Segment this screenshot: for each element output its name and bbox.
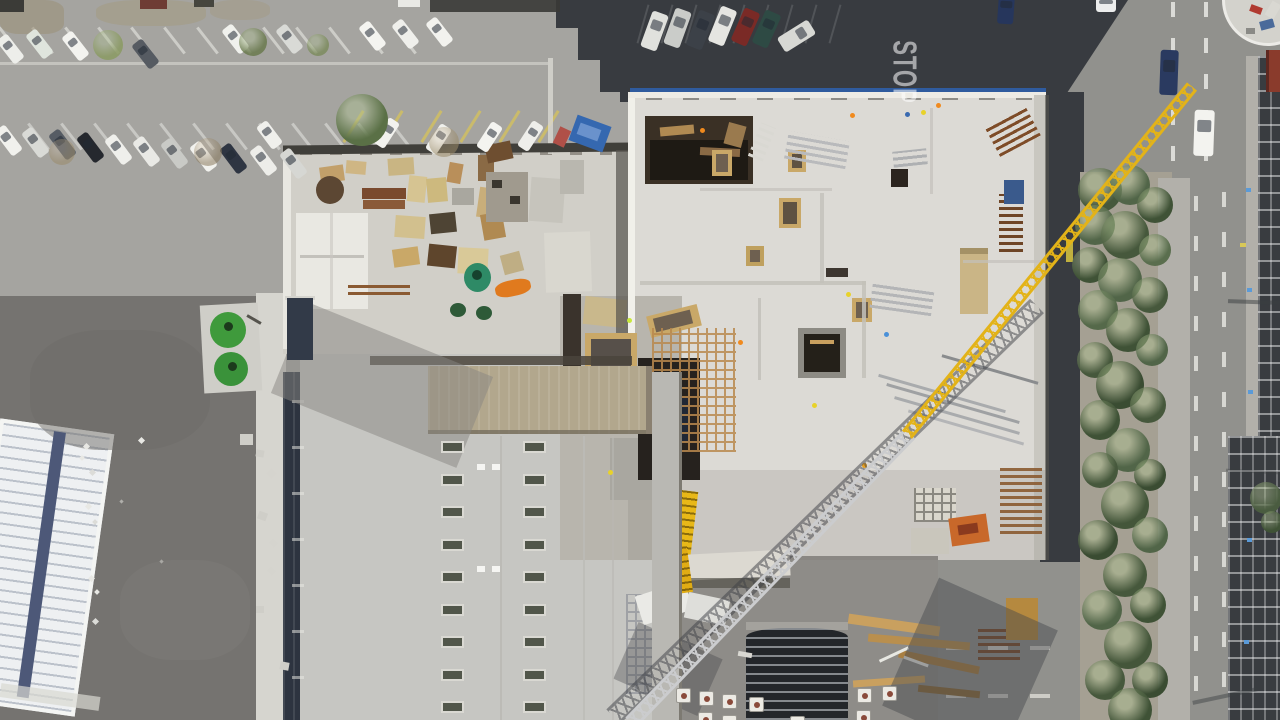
car-windshield bbox=[166, 144, 178, 156]
parked-car bbox=[1193, 110, 1215, 157]
road-marking bbox=[1222, 592, 1226, 607]
roof-pad bbox=[240, 434, 253, 445]
road-marking bbox=[1222, 632, 1226, 647]
roof-seam bbox=[583, 436, 585, 720]
material bbox=[560, 160, 584, 194]
cable-coil bbox=[316, 176, 344, 204]
tree bbox=[336, 94, 388, 146]
roof-skylight bbox=[523, 539, 546, 551]
road-marking bbox=[1194, 636, 1198, 651]
car-windshield bbox=[761, 17, 776, 30]
road-marking bbox=[1194, 516, 1198, 531]
road-marking bbox=[1194, 316, 1198, 331]
road-mark-blue bbox=[1247, 288, 1252, 292]
road-marking bbox=[1194, 556, 1198, 571]
roof-vent bbox=[699, 691, 714, 706]
wall-line bbox=[930, 108, 933, 194]
car-windshield bbox=[397, 25, 409, 37]
road-marking bbox=[1194, 236, 1198, 251]
lumber-pile bbox=[1000, 468, 1042, 534]
car-windshield bbox=[67, 37, 79, 49]
rebar-stack bbox=[363, 200, 405, 209]
roof-skylight bbox=[441, 571, 464, 583]
roof-skylight bbox=[523, 636, 546, 648]
road-marking bbox=[1171, 146, 1175, 161]
roof-patch bbox=[120, 560, 250, 660]
wall-line bbox=[963, 260, 1047, 263]
car-windshield bbox=[261, 126, 273, 137]
car-windshield bbox=[695, 18, 710, 32]
wall-line bbox=[820, 193, 824, 283]
roof-handle bbox=[477, 566, 485, 572]
road-marking bbox=[292, 492, 304, 495]
tree bbox=[1261, 511, 1280, 533]
pallet-stack bbox=[914, 488, 956, 522]
road-marking bbox=[1194, 396, 1198, 411]
road-marking bbox=[292, 446, 304, 449]
car-windshield bbox=[137, 45, 149, 57]
formwork-frame bbox=[716, 154, 728, 172]
roof-skylight bbox=[441, 441, 464, 453]
roof-vent bbox=[790, 716, 805, 720]
car-windshield bbox=[281, 30, 293, 42]
roof-skylight bbox=[523, 506, 546, 518]
roof-pad bbox=[255, 449, 264, 457]
material bbox=[544, 231, 592, 293]
shadow-step bbox=[578, 28, 640, 60]
pallet-stack bbox=[911, 528, 949, 554]
road-marking bbox=[1194, 276, 1198, 291]
parked-car-partial bbox=[398, 0, 420, 7]
road-marking bbox=[1194, 476, 1198, 491]
tree bbox=[1132, 517, 1168, 553]
car-windshield bbox=[138, 142, 150, 154]
vent-dot bbox=[862, 693, 868, 699]
dark-grid-structure bbox=[1228, 436, 1280, 720]
slab-hole bbox=[492, 180, 502, 188]
vent-dot bbox=[754, 702, 760, 708]
tree bbox=[1082, 452, 1118, 488]
wall-line bbox=[862, 281, 866, 378]
roof-handle bbox=[492, 566, 500, 572]
tree bbox=[239, 28, 267, 56]
wall-line bbox=[758, 298, 761, 380]
road-marking bbox=[1222, 272, 1226, 287]
car-windshield bbox=[227, 30, 239, 42]
parked-car-partial bbox=[0, 0, 24, 12]
car-windshield bbox=[110, 140, 122, 152]
red-container bbox=[1266, 50, 1269, 92]
tree bbox=[1130, 587, 1166, 623]
wall-line bbox=[700, 188, 832, 191]
road-marking bbox=[1194, 596, 1198, 611]
material bbox=[426, 177, 448, 203]
road-mark-blue bbox=[1248, 390, 1253, 394]
car-windshield bbox=[1099, 0, 1113, 4]
roof-vent bbox=[722, 694, 737, 709]
aerial-photo-construction-site: STOP bbox=[0, 0, 1280, 720]
road-mark-yellow bbox=[1240, 243, 1246, 247]
roof-skylight bbox=[523, 571, 546, 583]
vent-dot bbox=[681, 693, 687, 699]
car-windshield bbox=[794, 26, 808, 41]
parked-car-partial bbox=[194, 0, 214, 7]
road-mark-blue bbox=[1247, 538, 1252, 542]
tree bbox=[93, 30, 123, 60]
car-windshield bbox=[527, 126, 539, 138]
plywood-panel bbox=[960, 248, 988, 314]
material bbox=[429, 212, 457, 235]
roof-vent bbox=[882, 686, 897, 701]
tree bbox=[194, 138, 222, 166]
road-marking bbox=[1204, 2, 1208, 17]
car-windshield bbox=[2, 40, 14, 52]
roof-skylight bbox=[523, 441, 546, 453]
road-mark-blue bbox=[1244, 640, 1249, 644]
material bbox=[407, 175, 428, 203]
car-windshield bbox=[27, 133, 39, 145]
car-windshield bbox=[672, 16, 687, 29]
car-windshield bbox=[486, 127, 498, 139]
wall-line bbox=[640, 281, 866, 285]
tree bbox=[1136, 334, 1168, 366]
dirt-patch bbox=[210, 0, 270, 20]
car-windshield bbox=[1163, 60, 1176, 72]
tree bbox=[1132, 277, 1168, 313]
floor-opening bbox=[826, 268, 848, 277]
parked-car bbox=[1159, 50, 1179, 96]
road-marking bbox=[1194, 196, 1198, 211]
roof-skylight bbox=[441, 539, 464, 551]
road-marking bbox=[1222, 192, 1226, 207]
tank-cap bbox=[228, 362, 237, 371]
construction-worker bbox=[905, 112, 910, 117]
lumber-row bbox=[348, 281, 410, 295]
parked-car-partial bbox=[140, 0, 167, 9]
tree bbox=[49, 139, 75, 165]
road-mark-blue bbox=[1246, 188, 1251, 192]
construction-worker bbox=[627, 318, 632, 323]
car-windshield bbox=[740, 15, 755, 28]
tree bbox=[429, 127, 459, 157]
road-marking bbox=[1222, 392, 1226, 407]
roof-vent bbox=[749, 697, 764, 712]
roof-seam bbox=[500, 436, 502, 720]
cabin-seam bbox=[330, 213, 333, 309]
roof-handle bbox=[492, 464, 500, 470]
tree bbox=[1078, 520, 1118, 560]
tree bbox=[307, 34, 329, 56]
curb bbox=[548, 58, 553, 154]
roof-skylight bbox=[441, 474, 464, 486]
deck-edge-lit bbox=[628, 98, 635, 340]
roof-skylight bbox=[441, 701, 464, 713]
road-marking bbox=[1030, 694, 1050, 698]
parked-car bbox=[1096, 0, 1116, 12]
parked-car-partial bbox=[430, 0, 560, 12]
road-marking-stop: STOP bbox=[874, 44, 934, 100]
tree bbox=[1130, 387, 1166, 423]
car-windshield bbox=[285, 154, 297, 166]
slab-hole bbox=[510, 196, 520, 204]
road-marking bbox=[1222, 312, 1226, 327]
road-marking bbox=[292, 676, 304, 679]
car-windshield bbox=[717, 14, 732, 28]
road-marking bbox=[1194, 356, 1198, 371]
vent-dot bbox=[861, 715, 867, 720]
tree bbox=[1250, 482, 1280, 514]
construction-worker bbox=[700, 128, 705, 133]
road-marking bbox=[1222, 432, 1226, 447]
road-marking bbox=[292, 630, 304, 633]
construction-worker bbox=[608, 470, 613, 475]
roof-pad bbox=[256, 606, 264, 613]
construction-worker bbox=[846, 292, 851, 297]
construction-worker bbox=[850, 113, 855, 118]
road-marking bbox=[1222, 472, 1226, 487]
material bbox=[387, 157, 414, 176]
rebar-stack bbox=[362, 188, 406, 199]
roof-skylight bbox=[441, 669, 464, 681]
plywood-panel bbox=[960, 248, 988, 254]
road-marking bbox=[292, 584, 304, 587]
lane-line bbox=[0, 62, 548, 65]
formwork-frame bbox=[750, 250, 760, 262]
road-marking bbox=[1171, 2, 1175, 17]
material bbox=[394, 215, 425, 239]
vent-dot bbox=[727, 699, 733, 705]
shadow-step bbox=[556, 0, 640, 28]
formwork-frame bbox=[783, 202, 797, 224]
construction-worker bbox=[812, 403, 817, 408]
road-marking bbox=[1222, 672, 1226, 687]
construction-worker bbox=[936, 103, 941, 108]
car-windshield bbox=[225, 149, 237, 161]
roof-skylight bbox=[523, 701, 546, 713]
solar-panel bbox=[287, 298, 313, 360]
road-marking bbox=[1194, 676, 1198, 691]
road-marking bbox=[1222, 232, 1226, 247]
vent-dot bbox=[704, 696, 710, 702]
parked-car bbox=[997, 0, 1015, 25]
deck-parapet bbox=[628, 92, 1046, 98]
car-windshield bbox=[255, 151, 267, 163]
road-marking bbox=[1204, 74, 1208, 89]
roof-skylight bbox=[523, 604, 546, 616]
material bbox=[345, 160, 366, 175]
roof-vent bbox=[676, 688, 691, 703]
construction-worker bbox=[738, 340, 743, 345]
material bbox=[392, 246, 420, 267]
road-marking bbox=[1204, 38, 1208, 53]
roof-handle bbox=[477, 464, 485, 470]
roof-skylight bbox=[523, 474, 546, 486]
roof-skylight bbox=[441, 506, 464, 518]
road-marking bbox=[1222, 552, 1226, 567]
roof-skylight bbox=[441, 604, 464, 616]
tree bbox=[1139, 234, 1171, 266]
road-marking bbox=[1222, 352, 1226, 367]
construction-worker bbox=[921, 110, 926, 115]
small-drum bbox=[476, 306, 492, 320]
material bbox=[427, 244, 457, 269]
roof-vent bbox=[698, 712, 713, 720]
material bbox=[452, 188, 474, 205]
roof-skylight bbox=[523, 669, 546, 681]
blue-pallet bbox=[1004, 180, 1024, 204]
car-windshield bbox=[364, 27, 376, 39]
car-windshield bbox=[0, 131, 12, 143]
structure-detail bbox=[1246, 28, 1255, 34]
car-windshield bbox=[82, 138, 94, 150]
roof-seam bbox=[612, 436, 614, 720]
edge-guard-blue bbox=[630, 88, 1046, 92]
car-windshield bbox=[649, 19, 664, 32]
small-drum bbox=[450, 303, 466, 317]
roof-skylight bbox=[441, 636, 464, 648]
roof-pad bbox=[279, 661, 289, 670]
floor-opening bbox=[891, 169, 908, 187]
material bbox=[810, 340, 834, 344]
car-windshield bbox=[31, 35, 43, 47]
vent-dot bbox=[887, 691, 893, 697]
car-windshield bbox=[1197, 120, 1211, 132]
construction-worker bbox=[884, 332, 889, 337]
road-marking bbox=[1194, 436, 1198, 451]
car-windshield bbox=[1000, 0, 1012, 9]
drum-cap bbox=[472, 270, 482, 280]
roof-vent bbox=[722, 715, 737, 720]
road-marking bbox=[1222, 512, 1226, 527]
roof-vent bbox=[856, 710, 871, 720]
car-windshield bbox=[431, 23, 443, 35]
tank-cap bbox=[224, 322, 233, 331]
roof-vent bbox=[857, 688, 872, 703]
road-marking bbox=[292, 538, 304, 541]
